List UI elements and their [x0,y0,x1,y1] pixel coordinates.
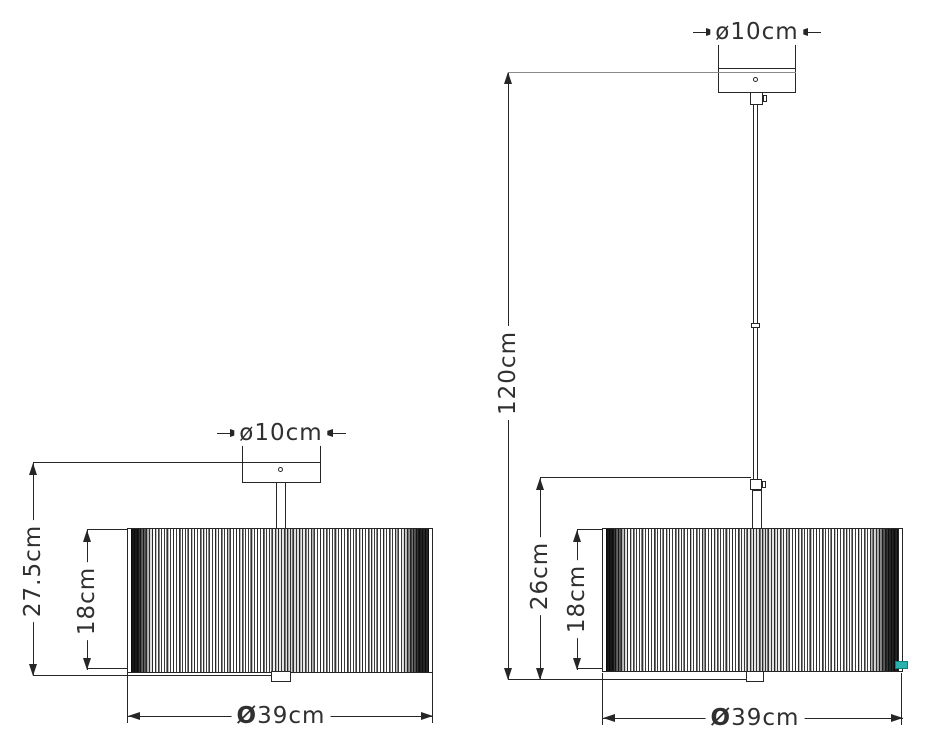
arrowhead [573,658,581,670]
arrowhead [603,714,615,722]
rod-connector-lower [750,479,762,490]
connector-screw [762,481,766,488]
suspension-rod [753,105,758,479]
extension-line [508,72,796,73]
shade-label-tag [895,661,908,669]
arrowhead [504,668,512,680]
arrowhead [504,72,512,84]
view-pendant-lamp: ø10cm 120cm 26cm [0,0,932,748]
dimension-label-overall-height: 120cm [495,326,521,420]
dimension-label-shade-height: 18cm [74,562,100,640]
dimension-label-shade-diameter: Ø39cm [232,703,331,729]
arrowhead [536,478,544,490]
dimension-label-overall-height: 27.5cm [20,520,46,622]
dimension-label-canopy-diameter: ø10cm [710,19,803,45]
socket-bottom [746,671,764,682]
dimension-label-canopy-diameter: ø10cm [234,420,327,446]
arrowhead [891,714,903,722]
arrowhead [573,530,581,542]
extension-line [540,477,751,478]
canopy-screw-hole [753,77,758,82]
lamp-shade [602,528,903,672]
rod-coupler [751,323,760,328]
shade-stem-tube [752,490,762,529]
connector-screw [763,95,767,102]
technical-drawing-canvas: ø10cm 27.5cm 18cm Ø39cm [0,0,932,748]
arrowhead [536,668,544,680]
dimension-label-shade-height: 18cm [564,560,590,638]
dimension-label-stem-to-shade-height: 26cm [527,537,553,615]
rod-connector-upper [750,92,763,105]
dimension-label-shade-diameter: Ø39cm [706,705,805,731]
shade-pleats-texture [606,529,899,671]
